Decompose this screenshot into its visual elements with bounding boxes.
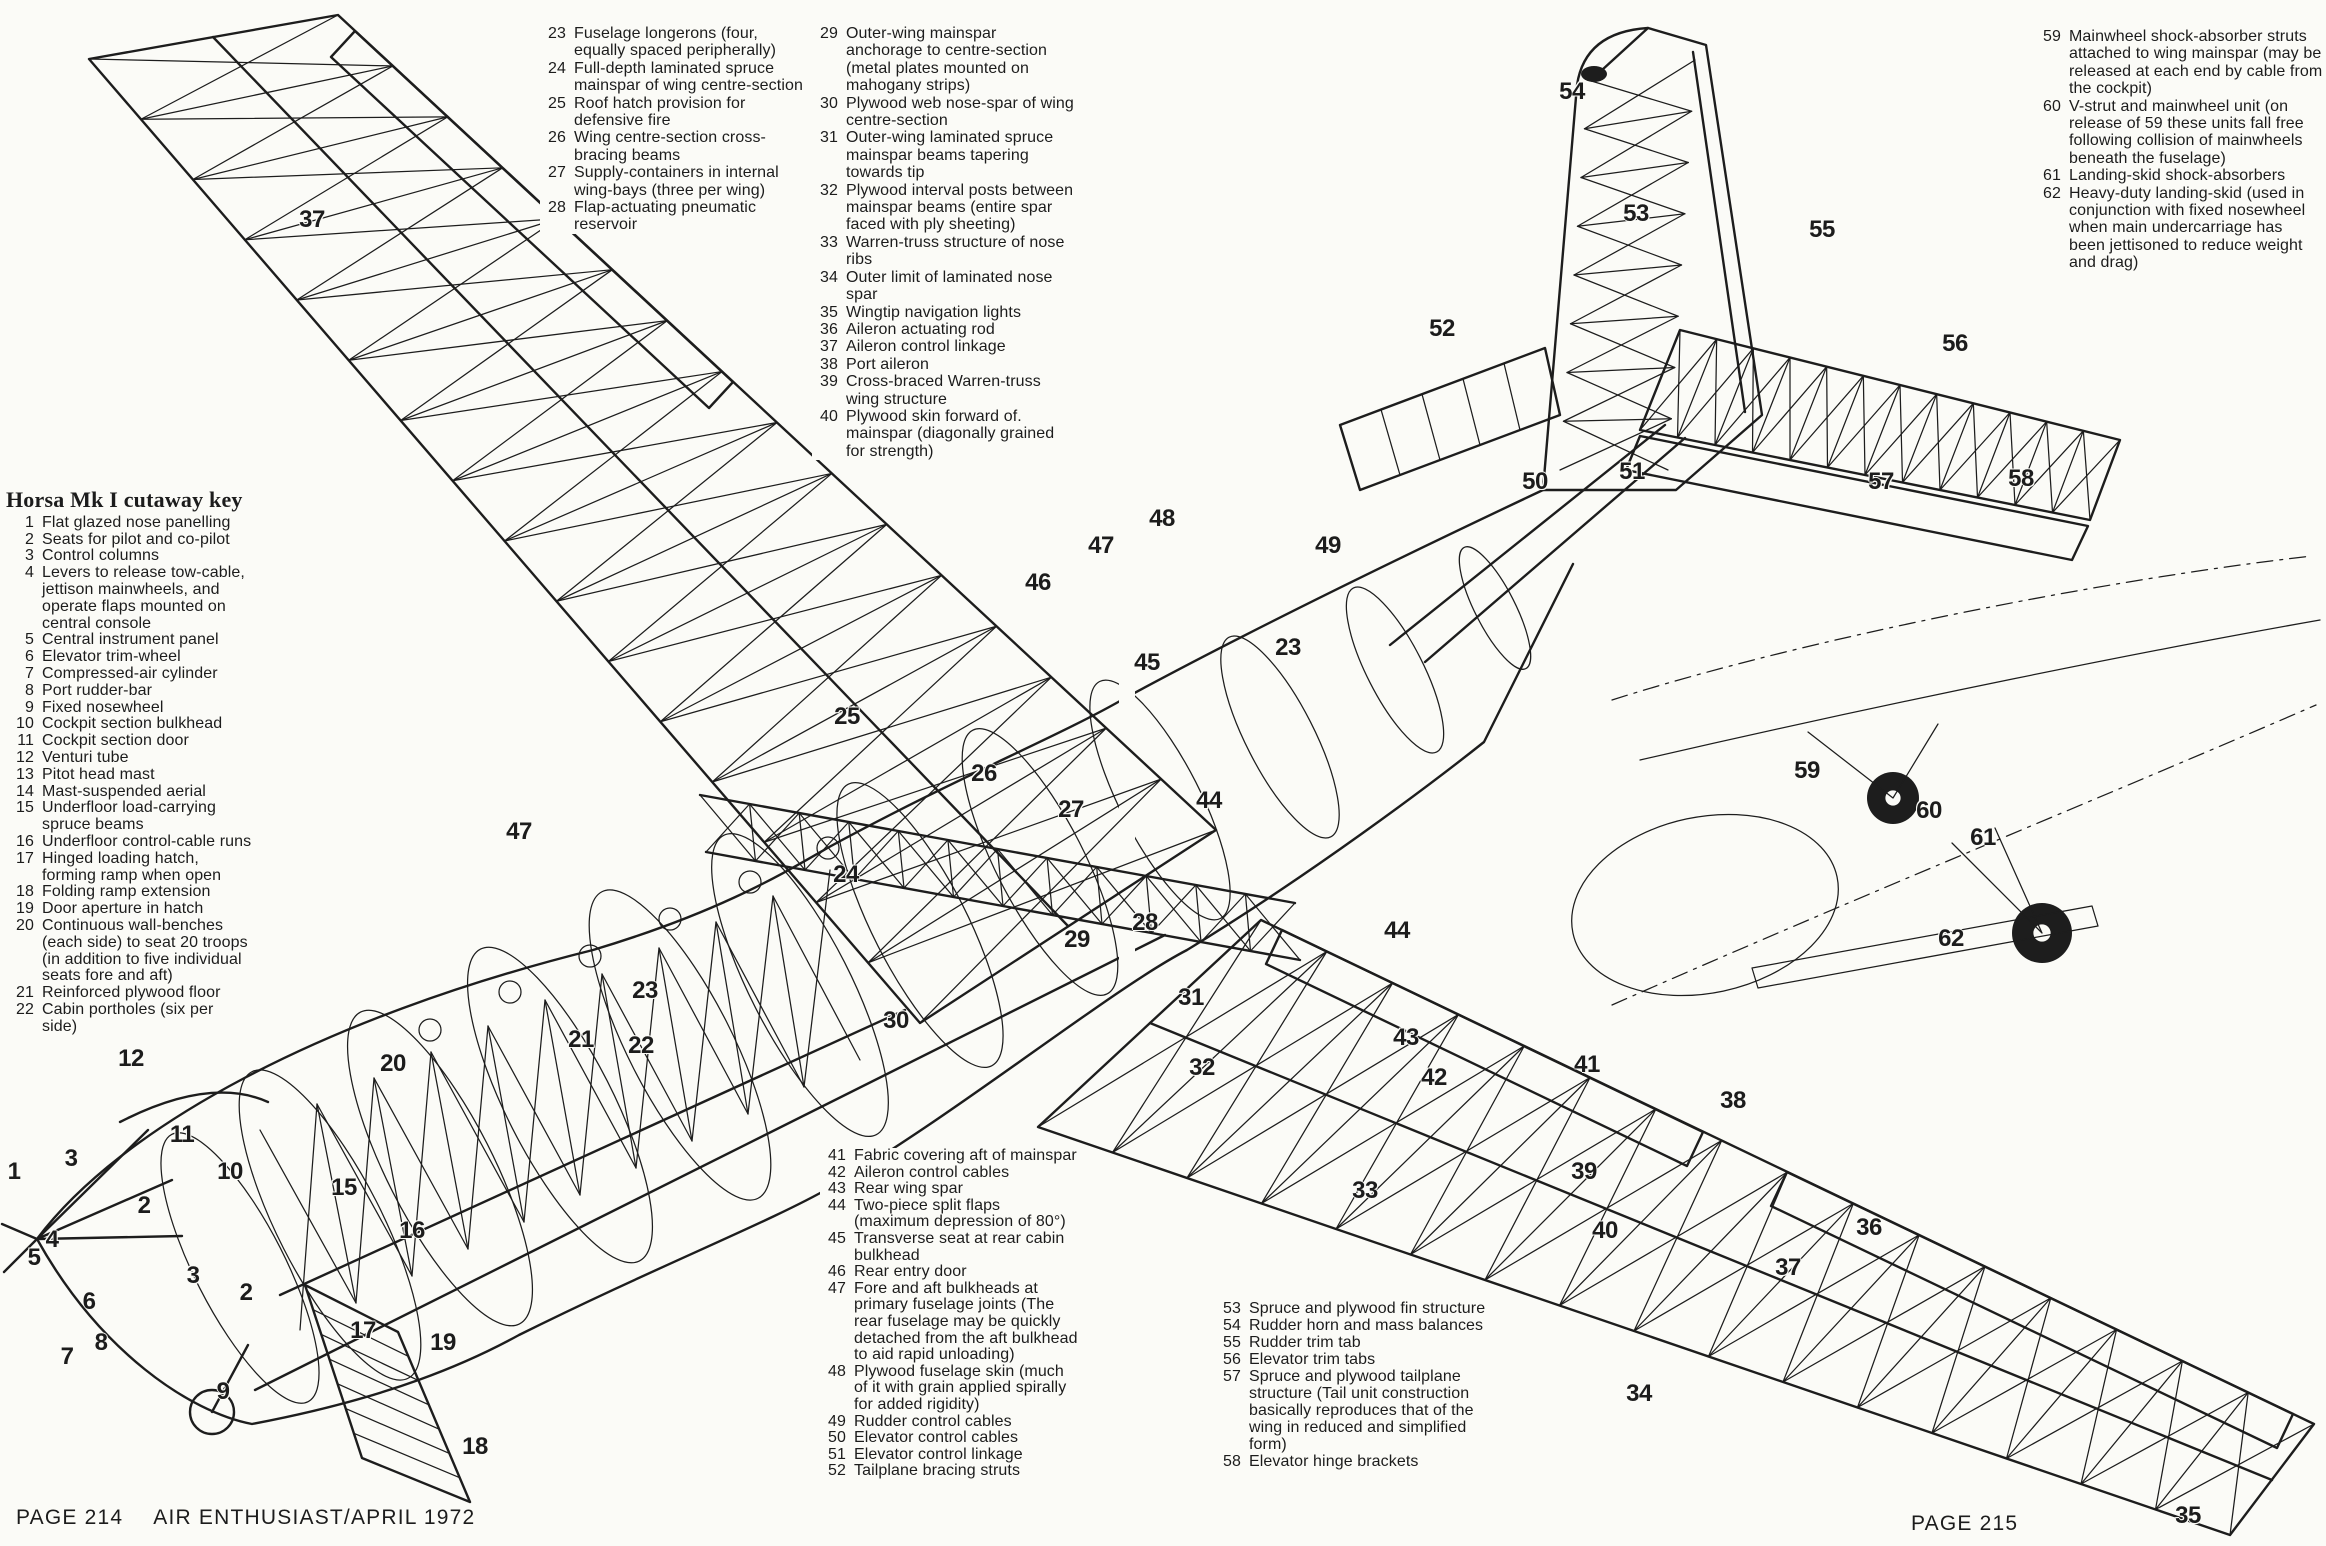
key-item-number: 45 [820, 1231, 846, 1248]
key-item-number: 29 [812, 25, 838, 42]
key-item-number: 36 [812, 321, 838, 338]
key-item-text: Roof hatch provision for defensive fire [574, 95, 745, 129]
key-item-number: 21 [8, 985, 34, 1002]
key-item-7: 7Compressed-air cylinder [8, 666, 252, 683]
key-item-text: Elevator control linkage [854, 1446, 1023, 1463]
truss-line [1564, 419, 1672, 422]
key-item-60: 60V-strut and mainwheel unit (on release… [2035, 98, 2323, 168]
key-item-text: Central instrument panel [42, 631, 219, 648]
key-item-text: Aileron control linkage [846, 338, 1006, 355]
truss-line [608, 575, 941, 661]
key-item-text: Rudder control cables [854, 1413, 1012, 1430]
truss-line [431, 1052, 468, 1249]
truss-line [1678, 339, 1717, 437]
fuselage-frame [1446, 538, 1543, 677]
cutaway-key-heading: Horsa Mk I cutaway key [6, 492, 252, 509]
nose-glazing-lines [37, 1093, 268, 1239]
key-item-number: 56 [1215, 1351, 1241, 1368]
truss-line [602, 974, 636, 1168]
key-item-text: Fixed nosewheel [42, 699, 164, 716]
truss-line [1097, 867, 1102, 924]
key-item-text: Pitot head mast [42, 766, 155, 783]
truss-line [1581, 163, 1688, 178]
cutaway-key-main: Horsa Mk I cutaway key 1Flat glazed nose… [8, 492, 252, 1036]
fuselage-frame [132, 1114, 348, 1422]
key-item-number: 62 [2035, 185, 2061, 202]
key-item-text: Underfloor load-carrying spruce beams [42, 799, 216, 833]
truss-line [1567, 316, 1678, 372]
key-item-number: 26 [540, 129, 566, 146]
truss-line [756, 813, 800, 861]
key-item-text: Door aperture in hatch [42, 900, 203, 917]
truss-line [1571, 316, 1679, 324]
key-item-text: Port aileron [846, 356, 929, 373]
key-item-text: Transverse seat at rear cabin bulkhead [854, 1230, 1064, 1264]
truss-line [1753, 358, 1791, 453]
key-item-56: 56Elevator trim tabs [1215, 1351, 1507, 1368]
key-item-text: Two-piece split flaps (maximum depressio… [854, 1197, 1066, 1231]
key-item-number: 42 [820, 1165, 846, 1182]
truss-line [1790, 367, 1827, 460]
key-item-text: Rudder horn and mass balances [1249, 1317, 1483, 1334]
key-item-text: Outer-wing mainspar anchorage to centre-… [846, 25, 1047, 94]
key-item-27: 27Supply-containers in internal wing-bay… [540, 164, 812, 199]
truss-line [1567, 368, 1675, 373]
key-item-text: Folding ramp extension [42, 883, 211, 900]
key-item-text: Plywood interval posts between mainspar … [846, 182, 1073, 234]
tail-unit [1340, 28, 2120, 662]
key-list-1-22: 1Flat glazed nose panelling2Seats for pi… [8, 515, 252, 1036]
key-item-15: 15Underfloor load-carrying spruce beams [8, 800, 252, 834]
key-item-number: 7 [8, 666, 34, 683]
truss-line [2081, 1393, 2248, 1485]
key-item-number: 6 [8, 649, 34, 666]
key-item-number: 51 [820, 1447, 846, 1464]
truss-line [1574, 275, 1678, 316]
key-item-42: 42Aileron control cables [820, 1165, 1078, 1182]
key-item-3: 3Control columns [8, 548, 252, 565]
truss-line [1578, 163, 1689, 227]
truss-line [1571, 324, 1675, 368]
key-item-text: Seats for pilot and co-pilot [42, 531, 230, 548]
key-item-number: 60 [2035, 98, 2061, 115]
truss-line [245, 219, 558, 240]
truss-line [580, 974, 602, 1195]
truss-line [401, 270, 613, 421]
tailplane-port-ribs [1381, 363, 1520, 475]
key-item-text: Fuselage longerons (four, equally spaced… [574, 25, 776, 59]
key-item-23: 23Fuselage longerons (four, equally spac… [540, 25, 812, 60]
key-item-35: 35Wingtip navigation lights [812, 304, 1074, 321]
key-item-number: 40 [812, 408, 838, 425]
truss-line [1463, 379, 1480, 445]
key-item-number: 58 [1215, 1453, 1241, 1470]
truss-line [1588, 80, 1692, 111]
key-item-39: 39Cross-braced Warren-truss wing structu… [812, 373, 1074, 408]
cabin-truss [260, 870, 860, 1330]
key-item-number: 3 [8, 548, 34, 565]
fin-ribs [1560, 60, 1695, 470]
key-item-text: Cabin portholes (six per side) [42, 1001, 213, 1035]
tailplane-bracing-struts [1390, 425, 1685, 662]
key-item-number: 35 [812, 304, 838, 321]
footer-page-number-left: PAGE 214 [16, 1506, 123, 1530]
key-item-number: 1 [8, 515, 34, 532]
fuselage-bottom-outline [37, 564, 1573, 1424]
truss-line [948, 840, 954, 897]
key-item-1: 1Flat glazed nose panelling [8, 515, 252, 532]
ramp-rungs [313, 1310, 460, 1478]
key-item-5: 5Central instrument panel [8, 632, 252, 649]
truss-line [1146, 876, 1151, 933]
truss-line [374, 1078, 412, 1276]
truss-line [805, 822, 849, 870]
truss-line [468, 1026, 488, 1249]
key-item-18: 18Folding ramp extension [8, 884, 252, 901]
footer-left: PAGE 214 AIR ENTHUSIAST/APRIL 1972 [16, 1506, 485, 1530]
truss-line [505, 372, 723, 541]
truss-line [1560, 419, 1671, 470]
truss-line [1053, 867, 1097, 915]
key-item-number: 30 [812, 95, 838, 112]
port-flap-strip [1266, 930, 1703, 1166]
key-item-number: 20 [8, 918, 34, 935]
key-item-text: Fabric covering aft of mainspar [854, 1147, 1077, 1164]
key-item-text: Flat glazed nose panelling [42, 514, 231, 531]
elevator-strip [1626, 436, 2088, 560]
key-item-text: Landing-skid shock-absorbers [2069, 167, 2285, 184]
key-item-50: 50Elevator control cables [820, 1430, 1078, 1447]
footer-page-number-right: PAGE 215 [1911, 1512, 2018, 1535]
truss-line [1828, 376, 1864, 468]
key-item-47: 47Fore and aft bulkheads at primary fuse… [820, 1281, 1078, 1364]
key-item-text: Aileron control cables [854, 1164, 1009, 1181]
key-item-text: Heavy-duty landing-skid (used in conjunc… [2069, 185, 2305, 272]
truss-line [401, 372, 723, 421]
truss-line [1578, 214, 1685, 227]
truss-line [1585, 129, 1689, 163]
key-item-text: Full-depth laminated spruce mainspar of … [574, 60, 803, 94]
fuselage-frame [206, 1048, 455, 1402]
key-item-40: 40Plywood skin forward of. mainspar (dia… [812, 408, 1074, 460]
key-item-number: 46 [820, 1264, 846, 1281]
key-list-23-28: 23Fuselage longerons (four, equally spac… [540, 25, 812, 234]
key-item-number: 32 [812, 182, 838, 199]
truss-line [816, 779, 1161, 902]
tow-cable [2, 1224, 37, 1272]
key-item-20: 20Continuous wall-benches (each side) to… [8, 918, 252, 985]
key-item-number: 49 [820, 1414, 846, 1431]
key-item-number: 10 [8, 716, 34, 733]
key-item-number: 24 [540, 60, 566, 77]
key-item-59: 59Mainwheel shock-absorber struts attach… [2035, 28, 2323, 98]
key-item-number: 43 [820, 1181, 846, 1198]
truss-line [1581, 178, 1685, 214]
truss-line [453, 423, 777, 481]
key-item-13: 13Pitot head mast [8, 767, 252, 784]
key-item-text: Rudder trim tab [1249, 1334, 1361, 1351]
key-item-text: Outer limit of laminated nose spar [846, 269, 1053, 303]
magazine-spread: 3754535552565051575849484746452325262744… [0, 0, 2326, 1546]
key-item-text: Supply-containers in internal wing-bays … [574, 164, 779, 198]
truss-line [868, 728, 1106, 963]
key-item-text: Continuous wall-benches (each side) to s… [42, 917, 248, 984]
truss-line [1709, 1235, 1920, 1357]
key-item-text: Rear wing spar [854, 1180, 963, 1197]
truss-line [1940, 413, 2010, 491]
key-item-24: 24Full-depth laminated spruce mainspar o… [540, 60, 812, 95]
key-item-text: Elevator trim tabs [1249, 1351, 1375, 1368]
key-item-text: Compressed-air cylinder [42, 665, 218, 682]
truss-line [1504, 363, 1520, 430]
key-item-34: 34Outer limit of laminated nose spar [812, 269, 1074, 304]
key-item-49: 49Rudder control cables [820, 1414, 1078, 1431]
fuselage-frame [433, 925, 686, 1285]
key-item-text: Aileron actuating rod [846, 321, 995, 338]
key-item-text: Rear entry door [854, 1263, 967, 1280]
key-item-text: Tailplane bracing struts [854, 1462, 1020, 1479]
truss-line [2015, 431, 2083, 505]
key-item-8: 8Port rudder-bar [8, 683, 252, 700]
key-item-30: 30Plywood web nose-spar of wing centre-s… [812, 95, 1074, 130]
truss-line [1578, 226, 1682, 265]
key-list-41-52: 41Fabric covering aft of mainspar42Ailer… [820, 1148, 1078, 1480]
truss-line [141, 117, 448, 119]
key-item-number: 19 [8, 901, 34, 918]
key-item-2: 2Seats for pilot and co-pilot [8, 532, 252, 549]
truss-line [2053, 440, 2121, 513]
truss-line [660, 626, 996, 722]
key-item-number: 38 [812, 356, 838, 373]
key-item-number: 48 [820, 1364, 846, 1381]
truss-line [505, 473, 832, 541]
key-item-text: Elevator control cables [854, 1429, 1018, 1446]
key-item-text: Mast-suspended aerial [42, 783, 206, 800]
truss-line [660, 524, 886, 721]
key-item-33: 33Warren-truss structure of nose ribs [812, 234, 1074, 269]
key-item-text: Plywood skin forward of. mainspar (diago… [846, 408, 1054, 460]
tailplane-port-outline [1340, 348, 1560, 490]
truss-line [636, 948, 659, 1168]
truss-line [904, 840, 948, 888]
key-item-48: 48Plywood fuselage skin (much of it with… [820, 1364, 1078, 1414]
key-item-21: 21Reinforced plywood floor [8, 985, 252, 1002]
truss-line [692, 922, 716, 1141]
key-item-number: 34 [812, 269, 838, 286]
key-item-45: 45Transverse seat at rear cabin bulkhead [820, 1231, 1078, 1264]
key-item-text: Fore and aft bulkheads at primary fusela… [854, 1280, 1078, 1363]
truss-line [453, 321, 668, 481]
key-item-29: 29Outer-wing mainspar anchorage to centr… [812, 25, 1074, 95]
nosewheel-strut [212, 1345, 248, 1412]
key-item-number: 23 [540, 25, 566, 42]
key-item-number: 5 [8, 632, 34, 649]
key-item-number: 15 [8, 800, 34, 817]
key-item-44: 44Two-piece split flaps (maximum depress… [820, 1198, 1078, 1231]
rudder-horn [1602, 28, 1648, 70]
key-item-number: 27 [540, 164, 566, 181]
truss-line [317, 1104, 356, 1303]
truss-line [1187, 1015, 1458, 1179]
undercarriage-inset [1555, 556, 2320, 1019]
truss-line [349, 219, 558, 361]
truss-line [1560, 1172, 1788, 1306]
key-item-41: 41Fabric covering aft of mainspar [820, 1148, 1078, 1165]
key-item-number: 28 [540, 199, 566, 216]
key-item-text: Plywood web nose-spar of wing centre-sec… [846, 95, 1074, 129]
key-item-54: 54Rudder horn and mass balances [1215, 1317, 1507, 1334]
key-item-number: 41 [820, 1148, 846, 1165]
fuselage-frame [1199, 622, 1361, 852]
rudder-mass-balance [1581, 66, 1607, 82]
truss-line [1865, 385, 1900, 475]
key-item-number: 12 [8, 750, 34, 767]
cutaway-drawing [0, 0, 2326, 1546]
key-item-19: 19Door aperture in hatch [8, 901, 252, 918]
inset-fuselage-section [1555, 791, 1856, 1019]
key-item-32: 32Plywood interval posts between mainspa… [812, 182, 1074, 234]
truss-line [1634, 1204, 1853, 1332]
key-item-number: 33 [812, 234, 838, 251]
key-item-text: Mainwheel shock-absorber struts attached… [2069, 28, 2322, 97]
key-list-53-58: 53Spruce and plywood fin structure54Rudd… [1215, 1300, 1507, 1470]
key-item-14: 14Mast-suspended aerial [8, 784, 252, 801]
truss-line [1411, 1109, 1656, 1255]
truss-line [1783, 1267, 1985, 1383]
truss-line [1585, 111, 1692, 129]
key-item-61: 61Landing-skid shock-absorbers [2035, 167, 2323, 184]
key-item-text: Elevator trim-wheel [42, 648, 181, 665]
key-item-53: 53Spruce and plywood fin structure [1215, 1300, 1507, 1317]
key-item-number: 16 [8, 834, 34, 851]
key-item-text: Plywood fuselage skin (much of it with g… [854, 1363, 1066, 1413]
key-item-52: 52Tailplane bracing struts [820, 1463, 1078, 1480]
key-item-number: 18 [8, 884, 34, 901]
truss-line [2015, 422, 2047, 505]
key-item-number: 8 [8, 683, 34, 700]
key-item-text: Elevator hinge brackets [1249, 1453, 1419, 1470]
truss-line [712, 575, 941, 782]
key-item-number: 53 [1215, 1300, 1241, 1317]
truss-line [898, 831, 904, 888]
key-item-number: 11 [8, 733, 34, 750]
key-item-text: Reinforced plywood floor [42, 984, 221, 1001]
inset-centreline-upper [1612, 556, 2312, 700]
key-item-number: 44 [820, 1198, 846, 1215]
key-item-55: 55Rudder trim tab [1215, 1334, 1507, 1351]
footer-magazine-title: AIR ENTHUSIAST/APRIL 1972 [153, 1506, 475, 1530]
key-item-number: 17 [8, 851, 34, 868]
key-item-text: V-strut and mainwheel unit (on release o… [2069, 98, 2304, 167]
key-item-26: 26Wing centre-section cross-bracing beam… [540, 129, 812, 164]
key-item-text: Cockpit section bulkhead [42, 715, 222, 732]
key-item-text: Control columns [42, 547, 159, 564]
truss-line [349, 321, 668, 361]
truss-line [855, 831, 899, 879]
key-item-38: 38Port aileron [812, 356, 1074, 373]
truss-line [1422, 394, 1440, 460]
truss-line [1858, 1298, 2051, 1408]
key-item-number: 55 [1215, 1334, 1241, 1351]
key-item-4: 4Levers to release tow-cable, jettison m… [8, 565, 252, 632]
inset-wing-outline [1640, 620, 2320, 760]
key-item-text: Spruce and plywood tailplane structure (… [1249, 1368, 1474, 1453]
truss-line [321, 1334, 418, 1380]
key-item-text: Cross-braced Warren-truss wing structure [846, 373, 1041, 407]
key-item-36: 36Aileron actuating rod [812, 321, 1074, 338]
fuselage-frame [1064, 663, 1256, 936]
footer-right: PAGE 215 [1903, 1512, 2026, 1536]
truss-line [659, 948, 692, 1141]
truss-line [1940, 403, 1973, 490]
key-item-number: 47 [820, 1281, 846, 1298]
truss-line [1978, 422, 2047, 498]
key-item-37: 37Aileron control linkage [812, 338, 1074, 355]
key-item-text: Wingtip navigation lights [846, 304, 1021, 321]
key-item-text: Underfloor control-cable runs [42, 833, 251, 850]
tailplane-ribs [1640, 330, 2120, 520]
key-item-28: 28Flap-actuating pneumatic reservoir [540, 199, 812, 234]
key-item-25: 25Roof hatch provision for defensive fir… [540, 95, 812, 130]
key-item-text: Levers to release tow-cable, jettison ma… [42, 564, 245, 631]
key-item-text: Warren-truss structure of nose ribs [846, 234, 1064, 268]
key-item-31: 31Outer-wing laminated spruce mainspar b… [812, 129, 1074, 181]
truss-line [556, 423, 777, 602]
key-item-43: 43Rear wing spar [820, 1181, 1078, 1198]
key-item-17: 17Hinged loading hatch, forming ramp whe… [8, 851, 252, 885]
key-item-number: 31 [812, 129, 838, 146]
key-item-number: 25 [540, 95, 566, 112]
key-item-number: 57 [1215, 1368, 1241, 1385]
key-item-51: 51Elevator control linkage [820, 1447, 1078, 1464]
key-item-62: 62Heavy-duty landing-skid (used in conju… [2035, 185, 2323, 272]
truss-line [748, 896, 773, 1114]
truss-line [1564, 421, 1669, 470]
key-item-58: 58Elevator hinge brackets [1215, 1453, 1507, 1470]
key-item-number: 22 [8, 1002, 34, 1019]
key-item-number: 2 [8, 532, 34, 549]
key-item-text: Venturi tube [42, 749, 129, 766]
key-list-29-40: 29Outer-wing mainspar anchorage to centr… [812, 25, 1074, 460]
key-item-number: 50 [820, 1430, 846, 1447]
truss-line [245, 117, 448, 240]
key-item-22: 22Cabin portholes (six per side) [8, 1002, 252, 1036]
truss-line [2053, 431, 2084, 513]
truss-line [706, 804, 750, 852]
truss-line [1978, 413, 2011, 498]
truss-line [193, 66, 393, 180]
key-item-57: 57Spruce and plywood tailplane structure… [1215, 1368, 1507, 1453]
key-item-number: 52 [820, 1463, 846, 1480]
key-item-46: 46Rear entry door [820, 1264, 1078, 1281]
truss-line [816, 677, 1051, 902]
key-item-number: 39 [812, 373, 838, 390]
truss-line [556, 524, 886, 601]
key-item-number: 13 [8, 767, 34, 784]
key-item-text: Wing centre-section cross-bracing beams [574, 129, 766, 163]
truss-line [1715, 348, 1753, 445]
key-item-text: Port rudder-bar [42, 682, 152, 699]
truss-line [1381, 410, 1400, 475]
key-item-number: 9 [8, 700, 34, 717]
key-list-59-62: 59Mainwheel shock-absorber struts attach… [2035, 28, 2323, 272]
truss-line [1903, 394, 1937, 482]
key-item-text: Flap-actuating pneumatic reservoir [574, 199, 756, 233]
truss-line [764, 728, 1106, 842]
key-item-12: 12Venturi tube [8, 750, 252, 767]
key-item-16: 16Underfloor control-cable runs [8, 834, 252, 851]
key-item-6: 6Elevator trim-wheel [8, 649, 252, 666]
